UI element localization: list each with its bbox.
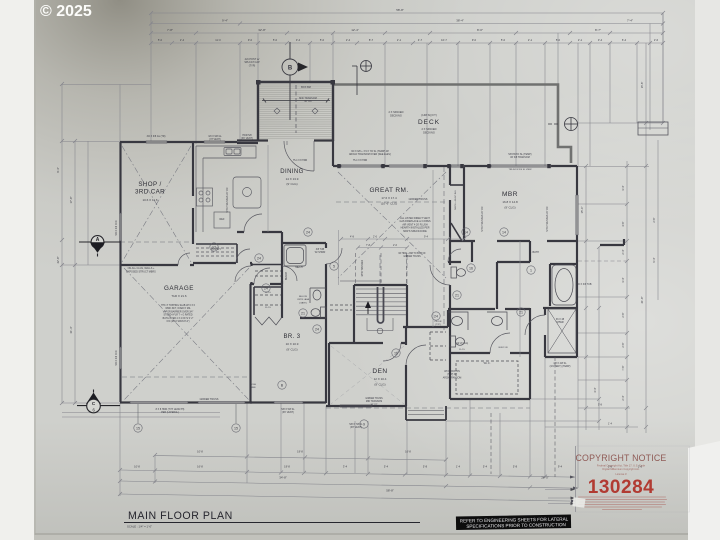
svg-text:36' OC: 36' OC — [304, 100, 312, 103]
svg-text:2 X SPACED: 2 X SPACED — [388, 110, 403, 114]
svg-text:3'-4”: 3'-4” — [621, 277, 625, 282]
svg-text:3'-4: 3'-4 — [343, 465, 348, 469]
svg-text:130284: 130284 — [588, 477, 654, 498]
svg-text:5: 5 — [333, 264, 335, 268]
svg-text:PR DR: PR DR — [435, 321, 442, 323]
svg-text:EXPOSED STRUCT MBRS: EXPOSED STRUCT MBRS — [126, 270, 156, 273]
svg-text:(9' CLG): (9' CLG) — [504, 206, 515, 210]
svg-text:9'-4”: 9'-4” — [222, 19, 228, 23]
svg-text:TRI-3/4 W 3/4 SL VIEW: TRI-3/4 W 3/4 SL VIEW — [508, 169, 532, 171]
svg-text:(GATE): (GATE) — [299, 301, 307, 304]
svg-text:BENCH: BENCH — [286, 272, 288, 280]
svg-text:9'-4”: 9'-4” — [56, 167, 60, 173]
svg-text:BUILT-IN: BUILT-IN — [499, 347, 508, 349]
svg-text:2'-6: 2'-6 — [393, 244, 398, 247]
svg-text:DINING: DINING — [280, 169, 303, 175]
svg-text:2'-6”: 2'-6” — [621, 342, 625, 347]
svg-text:34'-8”: 34'-8” — [279, 476, 287, 480]
svg-text:58'-8”: 58'-8” — [396, 8, 404, 12]
svg-text:5/8 X 3/8 FXD: 5/8 X 3/8 FXD — [115, 350, 118, 365]
svg-text:MFR'S SPECS/CODE: MFR'S SPECS/CODE — [403, 230, 427, 233]
svg-text:7'-6”: 7'-6” — [621, 365, 625, 370]
svg-text:SHOP /: SHOP / — [138, 181, 161, 188]
svg-text:21: 21 — [301, 311, 305, 315]
svg-text:9'-4: 9'-4 — [558, 465, 563, 469]
svg-text:24'-0”: 24'-0” — [541, 476, 549, 480]
svg-text:BELOW: BELOW — [299, 296, 308, 298]
svg-text:3/8 TUB: 3/8 TUB — [316, 249, 325, 251]
svg-text:License #: License # — [615, 472, 627, 476]
svg-text:75-4 X 8 HDR: 75-4 X 8 HDR — [293, 160, 308, 162]
svg-text:AROLD TRANSOM OVER (SEE ELEV): AROLD TRANSOM OVER (SEE ELEV) — [349, 153, 391, 156]
svg-text:4'-7: 4'-7 — [418, 38, 423, 42]
svg-text:R 4 S: R 4 S — [459, 349, 465, 351]
svg-text:MTD TRUSSES: MTD TRUSSES — [362, 259, 364, 276]
svg-text:B: B — [288, 65, 293, 71]
svg-text:A: A — [96, 237, 100, 243]
svg-text:4'-4”: 4'-4” — [593, 387, 597, 392]
svg-text:8'-7: 8'-7 — [369, 38, 374, 42]
svg-text:TH6 X 21.6: TH6 X 21.6 — [171, 294, 187, 298]
svg-text:5'-0: 5'-0 — [158, 38, 163, 42]
svg-text:1'-4: 1'-4 — [456, 465, 461, 469]
svg-text:16'-8: 16'-8 — [197, 465, 203, 469]
svg-text:SCALE : 1/4” = 1'-0”: SCALE : 1/4” = 1'-0” — [127, 525, 152, 529]
svg-text:31'-4”: 31'-4” — [69, 326, 73, 333]
svg-text:DECKING: DECKING — [423, 131, 435, 135]
svg-text:(36' VENT): (36' VENT) — [241, 137, 253, 140]
svg-text:24: 24 — [306, 230, 310, 234]
svg-text:12 X 10.4: 12 X 10.4 — [374, 377, 387, 381]
svg-text:16: 16 — [394, 351, 398, 355]
svg-text:(3/4 VENT) (TEMP): (3/4 VENT) (TEMP) — [550, 365, 571, 368]
svg-text:2'-4”: 2'-4” — [621, 395, 625, 400]
svg-text:32'-8”: 32'-8” — [258, 28, 266, 32]
svg-text:Digital Millennium Copyright A: Digital Millennium Copyright Act. — [602, 467, 639, 471]
svg-text:5'-8: 5'-8 — [513, 465, 518, 469]
svg-text:24: 24 — [264, 286, 268, 290]
svg-text:MECH + BUILT-INS: MECH + BUILT-INS — [455, 190, 457, 210]
svg-text:STURD-I-FLR T + G RATED: STURD-I-FLR T + G RATED — [163, 314, 192, 317]
svg-text:16'-8: 16'-8 — [405, 450, 411, 454]
svg-text:3/0 X 9/8 GL (TR): 3/0 X 9/8 GL (TR) — [147, 135, 166, 138]
svg-text:9'-0: 9'-0 — [248, 38, 253, 42]
svg-text:(3T VENT): (3T VENT) — [209, 138, 221, 141]
svg-text:15'-6”: 15'-6” — [640, 82, 644, 89]
svg-text:6/0 X 3/6 TUB: 6/0 X 3/6 TUB — [577, 283, 592, 286]
svg-text:24: 24 — [315, 327, 319, 331]
svg-text:9'-4: 9'-4 — [424, 236, 429, 239]
svg-text:8'-7”: 8'-7” — [595, 28, 601, 32]
svg-text:1'-4: 1'-4 — [608, 423, 613, 426]
svg-text:10 X 10.9: 10 X 10.9 — [286, 342, 299, 346]
svg-text:5/8 X 3/8 FXD: 5/8 X 3/8 FXD — [115, 220, 118, 235]
svg-text:17.6 X 17.4: 17.6 X 17.4 — [381, 196, 397, 200]
svg-text:W/ 3/8 TRANSOM: W/ 3/8 TRANSOM — [510, 156, 529, 159]
svg-text:O/C (MAX SPAN 8'-0”): O/C (MAX SPAN 8'-0”) — [166, 320, 189, 323]
svg-text:11'-0: 11'-0 — [215, 38, 221, 42]
svg-text:2'-1: 2'-1 — [397, 38, 402, 42]
svg-text:DECK: DECK — [418, 119, 440, 126]
svg-text:(36' VENT): (36' VENT) — [282, 411, 294, 414]
svg-text:42'-8”: 42'-8” — [56, 256, 60, 263]
svg-text:1: 1 — [530, 268, 532, 272]
svg-text:GIRDER TRUSS: GIRDER TRUSS — [403, 256, 421, 258]
svg-text:GIRDER TRUSS: GIRDER TRUSS — [409, 198, 428, 201]
svg-text:5'-0: 5'-0 — [320, 38, 325, 42]
svg-text:15'-6”: 15'-6” — [580, 206, 584, 213]
svg-text:2'-6”: 2'-6” — [621, 312, 625, 317]
svg-text:2 X SPACED: 2 X SPACED — [421, 127, 436, 131]
svg-text:58'-8”: 58'-8” — [386, 489, 394, 493]
svg-text:10'-8: 10'-8 — [134, 465, 140, 469]
svg-text:7'-4”: 7'-4” — [627, 19, 633, 23]
svg-text:5'-0: 5'-0 — [556, 38, 561, 42]
svg-text:R 4 S: R 4 S — [265, 292, 271, 294]
svg-text:2'-4: 2'-4 — [346, 38, 351, 42]
svg-text:BR. 3: BR. 3 — [283, 334, 300, 340]
svg-text:19'-8: 19'-8 — [284, 465, 290, 469]
svg-text:17'-8”: 17'-8” — [69, 196, 73, 203]
svg-text:4'-8: 4'-8 — [350, 236, 355, 239]
svg-text:5'-8: 5'-8 — [423, 465, 428, 469]
svg-text:15: 15 — [234, 426, 238, 430]
svg-text:(TYP): (TYP) — [249, 64, 256, 67]
svg-text:2'-6”: 2'-6” — [652, 217, 656, 222]
svg-text:9'-4”: 9'-4” — [652, 257, 656, 262]
svg-text:THK 3' TOPPING SLAB W/ 6 X 6: THK 3' TOPPING SLAB W/ 6 X 6 — [161, 304, 196, 307]
svg-text:7'-8: 7'-8 — [366, 244, 371, 247]
svg-text:10'-8: 10'-8 — [197, 450, 203, 454]
svg-text:DECKING: DECKING — [390, 114, 402, 118]
svg-text:4'-6”: 4'-6” — [621, 221, 625, 226]
svg-text:3RD CAR: 3RD CAR — [135, 189, 165, 196]
svg-text:(148 SQ FT): (148 SQ FT) — [421, 113, 437, 117]
svg-text:(TYP): (TYP) — [435, 324, 441, 326]
svg-text:2'-4: 2'-4 — [180, 38, 185, 42]
svg-text:16: 16 — [469, 266, 473, 270]
svg-text:W/ SHWR: W/ SHWR — [315, 252, 326, 254]
svg-text:(TYP) W/: (TYP) W/ — [447, 374, 457, 376]
svg-text:10'-7: 10'-7 — [441, 38, 447, 42]
svg-text:CNTR LAVA: CNTR LAVA — [297, 298, 309, 301]
svg-text:10.6 X 11.6: 10.6 X 11.6 — [142, 198, 157, 202]
svg-text:BATG OVER 4 X 2 OF 5/ 4' 2”: BATG OVER 4 X 2 OF 5/ 4' 2” — [163, 317, 194, 320]
svg-text:R 4 S: R 4 S — [265, 307, 271, 309]
svg-text:Federal Copyright Act, Title 1: Federal Copyright Act, Title 17, U.S. Co… — [597, 464, 646, 468]
svg-text:WWF #4/T, OVER 6' MIL: WWF #4/T, OVER 6' MIL — [165, 308, 191, 310]
svg-text:3'-4”: 3'-4” — [621, 185, 625, 190]
svg-text:2'-4”: 2'-4” — [621, 249, 625, 254]
svg-text:© 2025: © 2025 — [40, 3, 92, 20]
svg-text:21: 21 — [455, 293, 459, 297]
svg-text:9: 9 — [363, 422, 365, 426]
svg-text:GIRDER TRUSS: GIRDER TRUSS — [200, 398, 219, 401]
svg-text:21: 21 — [519, 310, 523, 314]
svg-text:REF: REF — [220, 218, 225, 221]
svg-text:14 X 13.9: 14 X 13.9 — [286, 177, 299, 181]
svg-text:9'-0: 9'-0 — [472, 38, 477, 42]
svg-text:M. BATH: M. BATH — [529, 251, 539, 254]
svg-text:ARCH TRANSOM: ARCH TRANSOM — [443, 376, 462, 379]
svg-text:5'-0: 5'-0 — [273, 38, 278, 42]
svg-text:MECH: MECH — [295, 266, 303, 269]
svg-text:3'-4: 3'-4 — [296, 38, 301, 42]
svg-text:8'-0”: 8'-0” — [477, 28, 483, 32]
svg-text:MBR: MBR — [502, 191, 518, 198]
svg-text:5'-0: 5'-0 — [501, 38, 506, 42]
svg-text:2'-1: 2'-1 — [578, 38, 583, 42]
svg-text:16.8 X 14.8: 16.8 X 14.8 — [502, 200, 518, 204]
svg-text:BOX BM: BOX BM — [301, 86, 311, 89]
svg-text:(10'-6” CLG): (10'-6” CLG) — [381, 202, 398, 206]
svg-text:24: 24 — [257, 256, 261, 260]
svg-text:MTD TRUSSES 24' OC: MTD TRUSSES 24' OC — [546, 206, 549, 231]
svg-text:PER (LATERAL): PER (LATERAL) — [161, 411, 179, 414]
svg-text:BIBB: BIBB — [251, 387, 257, 389]
svg-text:(12'-8 CLG): (12'-8 CLG) — [456, 342, 469, 345]
svg-text:41'-8”: 41'-8” — [640, 296, 644, 303]
svg-text:W.I.C.: W.I.C. — [484, 362, 491, 365]
svg-text:5'-4: 5'-4 — [384, 465, 389, 469]
svg-text:(9' CLG): (9' CLG) — [286, 182, 297, 186]
svg-text:7'-8”: 7'-8” — [167, 28, 173, 32]
svg-text:VAPOR BARRIER OVER 3/4”: VAPOR BARRIER OVER 3/4” — [163, 310, 194, 313]
svg-text:2'-1: 2'-1 — [528, 38, 533, 42]
svg-text:12'-4”: 12'-4” — [351, 28, 359, 32]
svg-text:(9' CLG): (9' CLG) — [286, 348, 297, 352]
svg-text:SHWR: SHWR — [556, 321, 564, 324]
svg-text:3'-4: 3'-4 — [598, 38, 603, 42]
svg-text:15: 15 — [136, 426, 140, 430]
svg-text:6'-4: 6'-4 — [622, 38, 627, 42]
svg-text:MID TRANSOM: MID TRANSOM — [366, 400, 382, 403]
svg-text:(3H VENT): (3H VENT) — [350, 426, 362, 429]
svg-text:14: 14 — [464, 230, 468, 234]
svg-text:75-4 X 8 HDR: 75-4 X 8 HDR — [353, 160, 368, 162]
svg-text:GARAGE: GARAGE — [164, 285, 194, 292]
svg-text:MTD TRUSSES 24' OC: MTD TRUSSES 24' OC — [226, 187, 229, 212]
svg-text:36' OC: 36' OC — [370, 404, 377, 406]
svg-text:GREAT RM.: GREAT RM. — [369, 187, 408, 194]
svg-text:GIRDER TRUSS: GIRDER TRUSS — [365, 398, 383, 400]
svg-text:2'-6: 2'-6 — [654, 38, 659, 42]
svg-text:MTD TRUSSES 24' OC: MTD TRUSSES 24' OC — [481, 206, 484, 231]
svg-text:14: 14 — [502, 230, 506, 234]
svg-text:24: 24 — [434, 314, 438, 318]
svg-text:PLNTRY: PLNTRY — [211, 247, 221, 251]
svg-text:W/ HDR + BM TO BOT OF: W/ HDR + BM TO BOT OF — [398, 253, 426, 255]
svg-text:19'-8: 19'-8 — [297, 450, 303, 454]
svg-text:2'-6: 2'-6 — [373, 236, 378, 239]
svg-text:COPYRIGHT NOTICE: COPYRIGHT NOTICE — [575, 453, 666, 463]
svg-text:HOSE: HOSE — [250, 384, 257, 386]
svg-text:5'-4: 5'-4 — [483, 465, 488, 469]
svg-text:5'-8: 5'-8 — [598, 404, 603, 407]
svg-text:MAIN FLOOR PLAN: MAIN FLOOR PLAN — [128, 510, 233, 522]
svg-text:W/ KNOCK DN: W/ KNOCK DN — [444, 371, 460, 373]
svg-text:38'-4”: 38'-4” — [456, 19, 464, 23]
svg-text:(9' CLG): (9' CLG) — [374, 383, 385, 387]
